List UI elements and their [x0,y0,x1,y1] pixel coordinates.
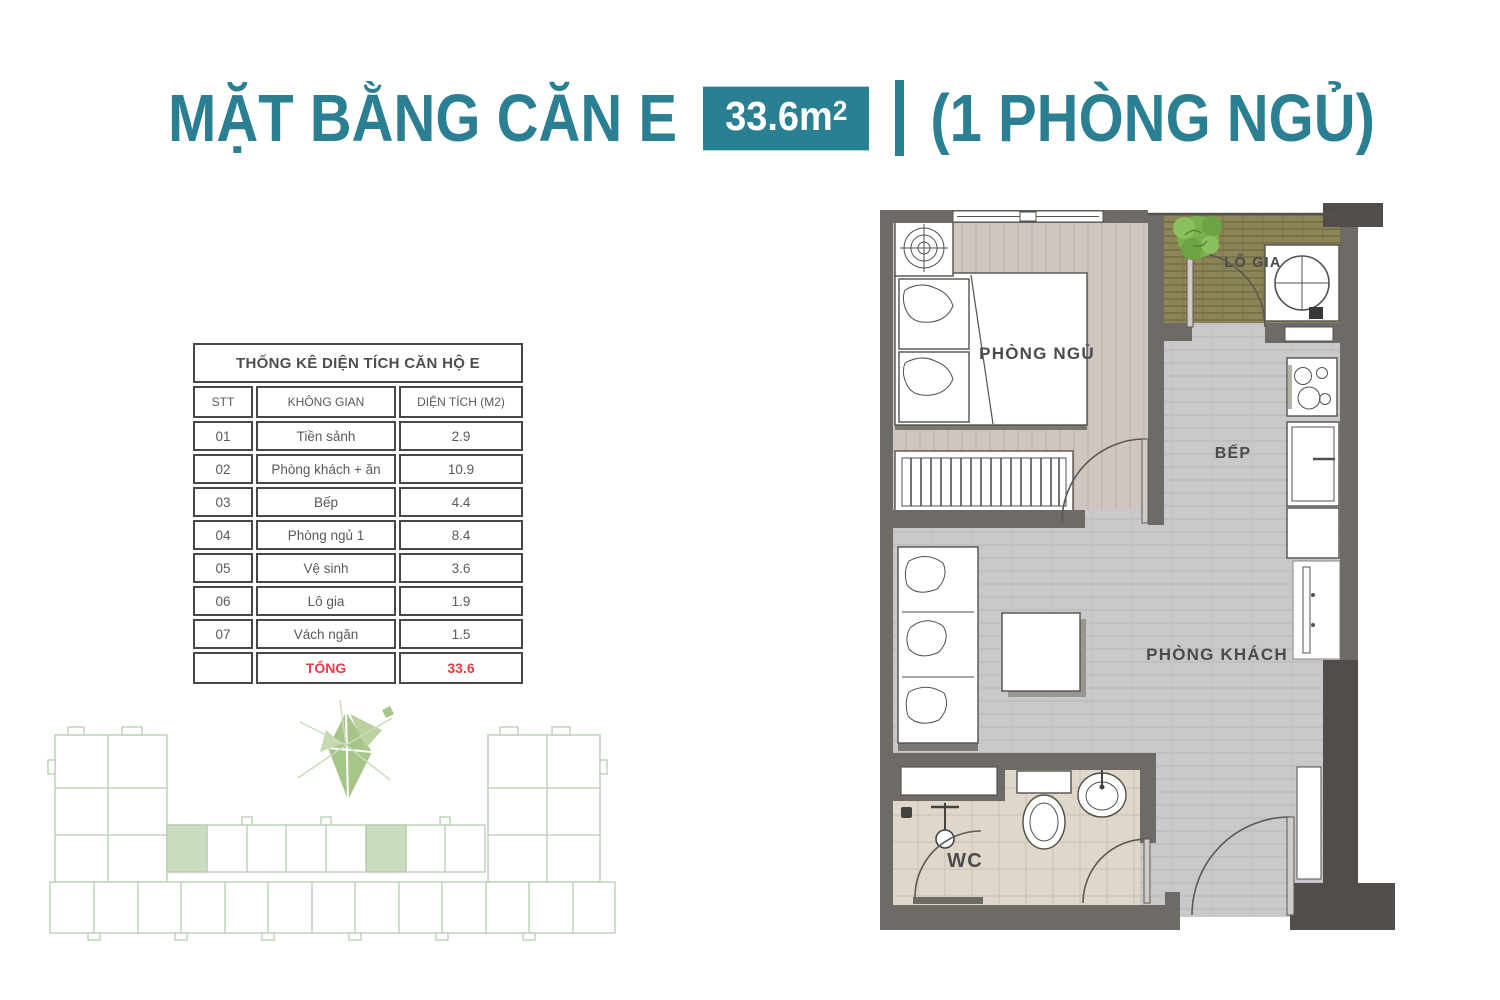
area-badge-value: 33.6m [725,94,833,139]
cell-space: Vệ sinh [256,553,396,583]
room-label-wc: WC [947,850,983,872]
table-row: 07 Vách ngăn 1.5 [193,619,523,649]
cell-space: Phòng khách + ăn [256,454,396,484]
table-header-row: STT KHÔNG GIAN DIỆN TÍCH (M2) [193,386,523,418]
area-badge-sup: 2 [833,94,847,126]
shower-stub-wall [913,897,983,904]
total-label: TỔNG [256,652,396,684]
project-logo-icon [298,700,394,800]
table-row: 02 Phòng khách + ăn 10.9 [193,454,523,484]
cell-space: Vách ngăn [256,619,396,649]
table-row: 04 Phòng ngủ 1 8.4 [193,520,523,550]
keyplan-left-wing [48,727,167,882]
cell-stt: 05 [193,553,253,583]
col-header-space: KHÔNG GIAN [256,386,396,418]
cell-space: Tiền sảnh [256,421,396,451]
keyplan-highlight-unit [366,825,406,872]
total-value: 33.6 [399,652,523,684]
table-row: 03 Bếp 4.4 [193,487,523,517]
room-label-kitchen: BẾP [1215,443,1252,462]
keyplan-upper-row [167,817,485,872]
table-title-row: THỐNG KÊ DIỆN TÍCH CĂN HỘ E [193,343,523,383]
cell-empty [193,652,253,684]
wall-vent-icon [1309,307,1323,319]
coffee-table-icon [1002,613,1086,697]
cell-area: 3.6 [399,553,523,583]
cell-area: 1.9 [399,586,523,616]
cell-stt: 06 [193,586,253,616]
cell-stt: 03 [193,487,253,517]
floor-plan: PHÒNG NGỦ LÔ GIA BẾP PHÒNG KHÁCH WC [865,195,1395,955]
title-separator-bar [895,80,904,156]
cell-stt: 01 [193,421,253,451]
sofa-icon [898,547,978,751]
table-row: 05 Vệ sinh 3.6 [193,553,523,583]
wardrobe-icon [895,451,1073,520]
table-row: 06 Lô gia 1.9 [193,586,523,616]
stove-icon [1287,358,1337,416]
hall-cabinet-icon [1297,767,1321,879]
entry-cabinet-icon [1293,561,1340,659]
cell-area: 1.5 [399,619,523,649]
col-header-stt: STT [193,386,253,418]
cell-stt: 04 [193,520,253,550]
floor-drain-icon [901,807,912,818]
cell-area: 2.9 [399,421,523,451]
cell-space: Lô gia [256,586,396,616]
room-label-bedroom: PHÒNG NGỦ [979,344,1095,363]
page-subtitle: (1 PHÒNG NGỦ) [930,79,1375,156]
page-title: MẶT BẰNG CĂN E [168,79,677,156]
keyplan-right-wing [488,727,607,882]
cell-stt: 02 [193,454,253,484]
fridge-icon [1287,422,1339,506]
cell-area: 8.4 [399,520,523,550]
cell-stt: 07 [193,619,253,649]
table-row: 01 Tiền sảnh 2.9 [193,421,523,451]
keyplan-highlight-unit [167,825,207,872]
window-handle-icon [1020,212,1036,221]
table-title: THỐNG KÊ DIỆN TÍCH CĂN HỘ E [193,343,523,383]
building-key-plan [30,700,630,950]
cell-area: 4.4 [399,487,523,517]
cell-area: 10.9 [399,454,523,484]
page-header: MẶT BẰNG CĂN E 33.6m2 (1 PHÒNG NGỦ) [168,78,1375,158]
room-label-balcony: LÔ GIA [1224,253,1281,271]
area-statistics-table: THỐNG KÊ DIỆN TÍCH CĂN HỘ E STT KHÔNG GI… [190,340,526,687]
room-label-living: PHÒNG KHÁCH [1146,645,1288,664]
table-total-row: TỔNG 33.6 [193,652,523,684]
area-badge: 33.6m2 [703,86,869,150]
col-header-area: DIỆN TÍCH (M2) [399,386,523,418]
keyplan-bottom-row [50,882,615,940]
wall-niche-icon [1285,327,1333,341]
nightstand-lamp-icon [895,220,953,276]
cell-space: Bếp [256,487,396,517]
cell-space: Phòng ngủ 1 [256,520,396,550]
kitchen-counter-icon [1287,508,1339,558]
wc-niche-icon [901,767,997,795]
